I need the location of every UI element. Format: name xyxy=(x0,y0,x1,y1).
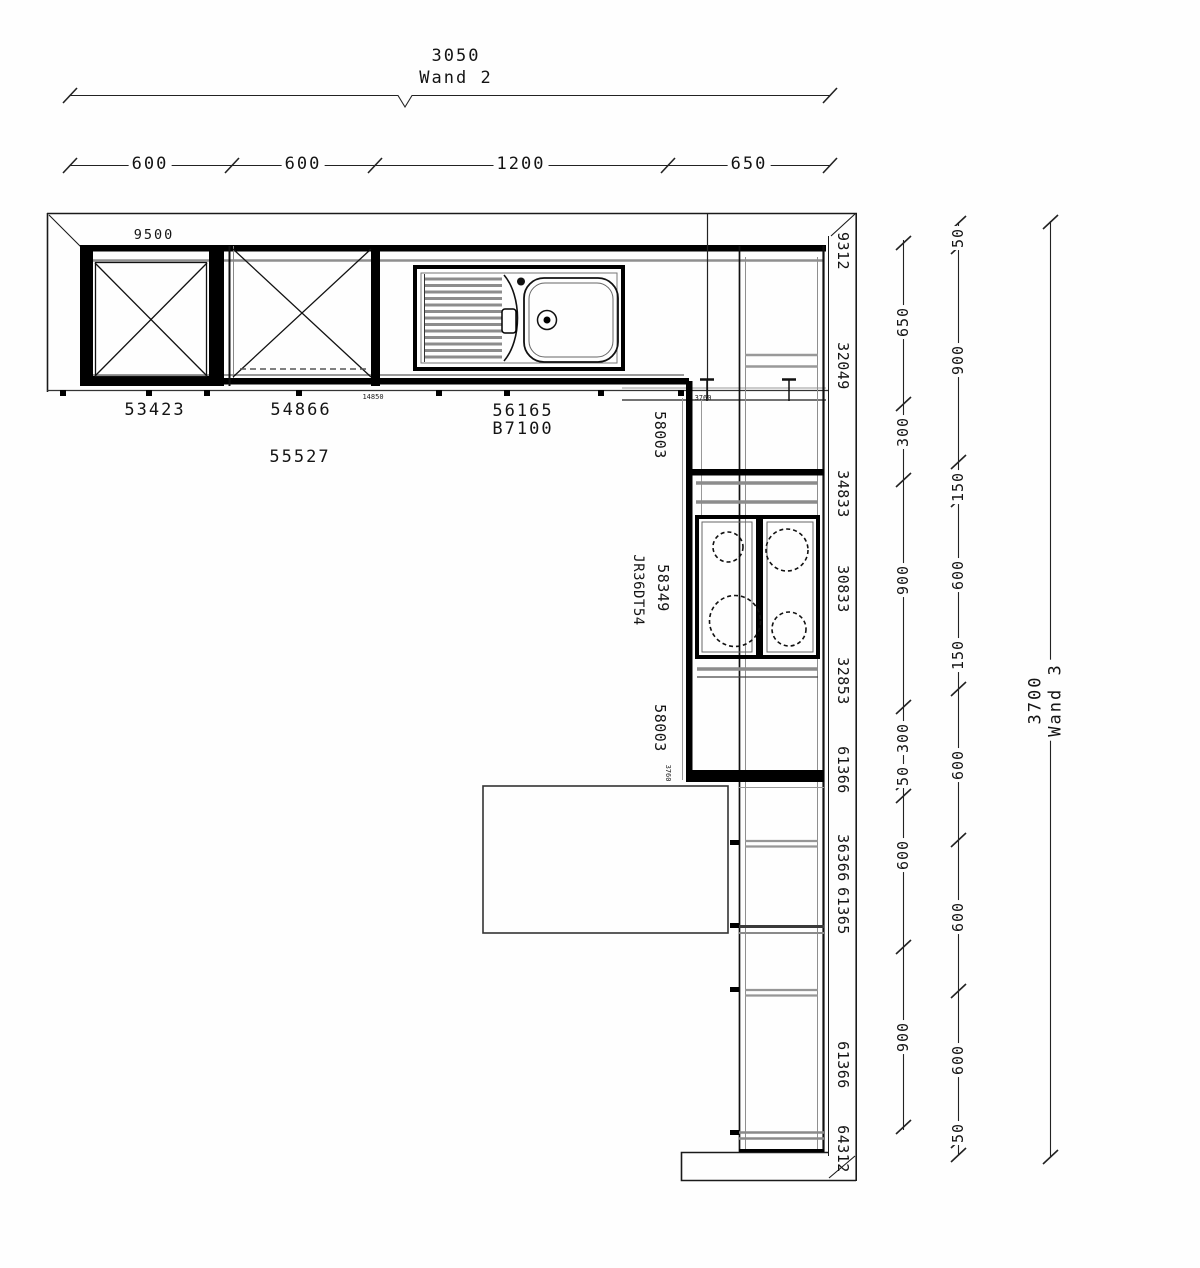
dim-segment: 300 xyxy=(894,415,912,449)
item-code-column: 61366 xyxy=(834,746,852,794)
island-outline xyxy=(483,786,728,933)
wall-label-wand3-block: 3700 Wand 3 xyxy=(1026,659,1065,740)
drainboard xyxy=(425,279,502,357)
cabinet-53423 xyxy=(80,246,224,386)
item-code-column: 30833 xyxy=(834,565,852,613)
item-code-tiny: 14850 xyxy=(362,393,383,401)
dim-segment: 600 xyxy=(129,156,172,174)
dim-segment: 650 xyxy=(728,156,771,174)
wall-label-wand2: Wand 2 xyxy=(419,70,492,88)
item-code-tiny: 3760 xyxy=(695,394,712,402)
dim-segment: 600 xyxy=(949,900,967,934)
dim-total-wand3: 3700 xyxy=(1026,663,1046,736)
item-code-tiny: 3760 xyxy=(664,765,672,782)
item-code-column: 9312 xyxy=(834,232,852,270)
floorplan-canvas: 3050 Wand 2 600 600 1200 650 9500 53423 … xyxy=(0,0,1200,1268)
dim-segment: 600 xyxy=(282,156,325,174)
item-code-column: 61366 xyxy=(834,1041,852,1089)
item-code-base2b: 55527 xyxy=(269,449,330,467)
item-code-column: 32049 xyxy=(834,342,852,390)
item-code-base1: 53423 xyxy=(124,402,185,420)
faucet-hole xyxy=(517,278,525,286)
cooktop xyxy=(697,517,818,657)
wall-corner-diagonal-topleft xyxy=(49,215,81,247)
column-ticks xyxy=(730,840,739,1135)
dim-segment: 50 xyxy=(949,226,967,250)
item-code-corner-b: 58349 xyxy=(654,564,672,612)
wall-footer xyxy=(682,1153,857,1181)
drainboard-tab xyxy=(502,309,516,333)
dim-segment: 900 xyxy=(894,563,912,597)
dim-segment: 50 xyxy=(894,764,912,788)
dim-line-wand2-total xyxy=(70,96,830,108)
dim-segment: 50 xyxy=(949,1121,967,1145)
dim-segment: 900 xyxy=(894,1020,912,1054)
wall-label-wand3: Wand 3 xyxy=(1046,663,1066,736)
dim-segment: 650 xyxy=(894,305,912,339)
item-code-base2: 54866 xyxy=(270,402,331,420)
item-code-sink-b: B7100 xyxy=(492,421,553,439)
dim-segment: 600 xyxy=(949,558,967,592)
cabinet-54866 xyxy=(230,246,381,386)
dim-segment: 600 xyxy=(949,1043,967,1077)
item-code-corner-d: 58003 xyxy=(651,704,669,752)
dim-segment: 300 xyxy=(894,721,912,755)
item-code-column: 34833 xyxy=(834,470,852,518)
dim-segment: 150 xyxy=(949,470,967,504)
dim-segment: 1200 xyxy=(494,156,549,174)
item-code-corner-c: JR36DT54 xyxy=(630,554,646,625)
item-code-corner-a: 58003 xyxy=(651,411,669,459)
item-code-column: 61365 xyxy=(834,887,852,935)
sink-unit xyxy=(415,267,623,369)
dim-segment: 150 xyxy=(949,638,967,672)
item-code-column: 32853 xyxy=(834,657,852,705)
floorplan-svg xyxy=(0,0,1200,1268)
dim-segment: 600 xyxy=(894,838,912,872)
dim-segment: 900 xyxy=(949,343,967,377)
item-code-column: 64312 xyxy=(834,1125,852,1173)
dim-total-wand2: 3050 xyxy=(432,48,481,66)
item-code-wall-unit: 9500 xyxy=(134,228,175,242)
item-code-column: 36366 xyxy=(834,834,852,882)
dim-segment: 600 xyxy=(949,748,967,782)
